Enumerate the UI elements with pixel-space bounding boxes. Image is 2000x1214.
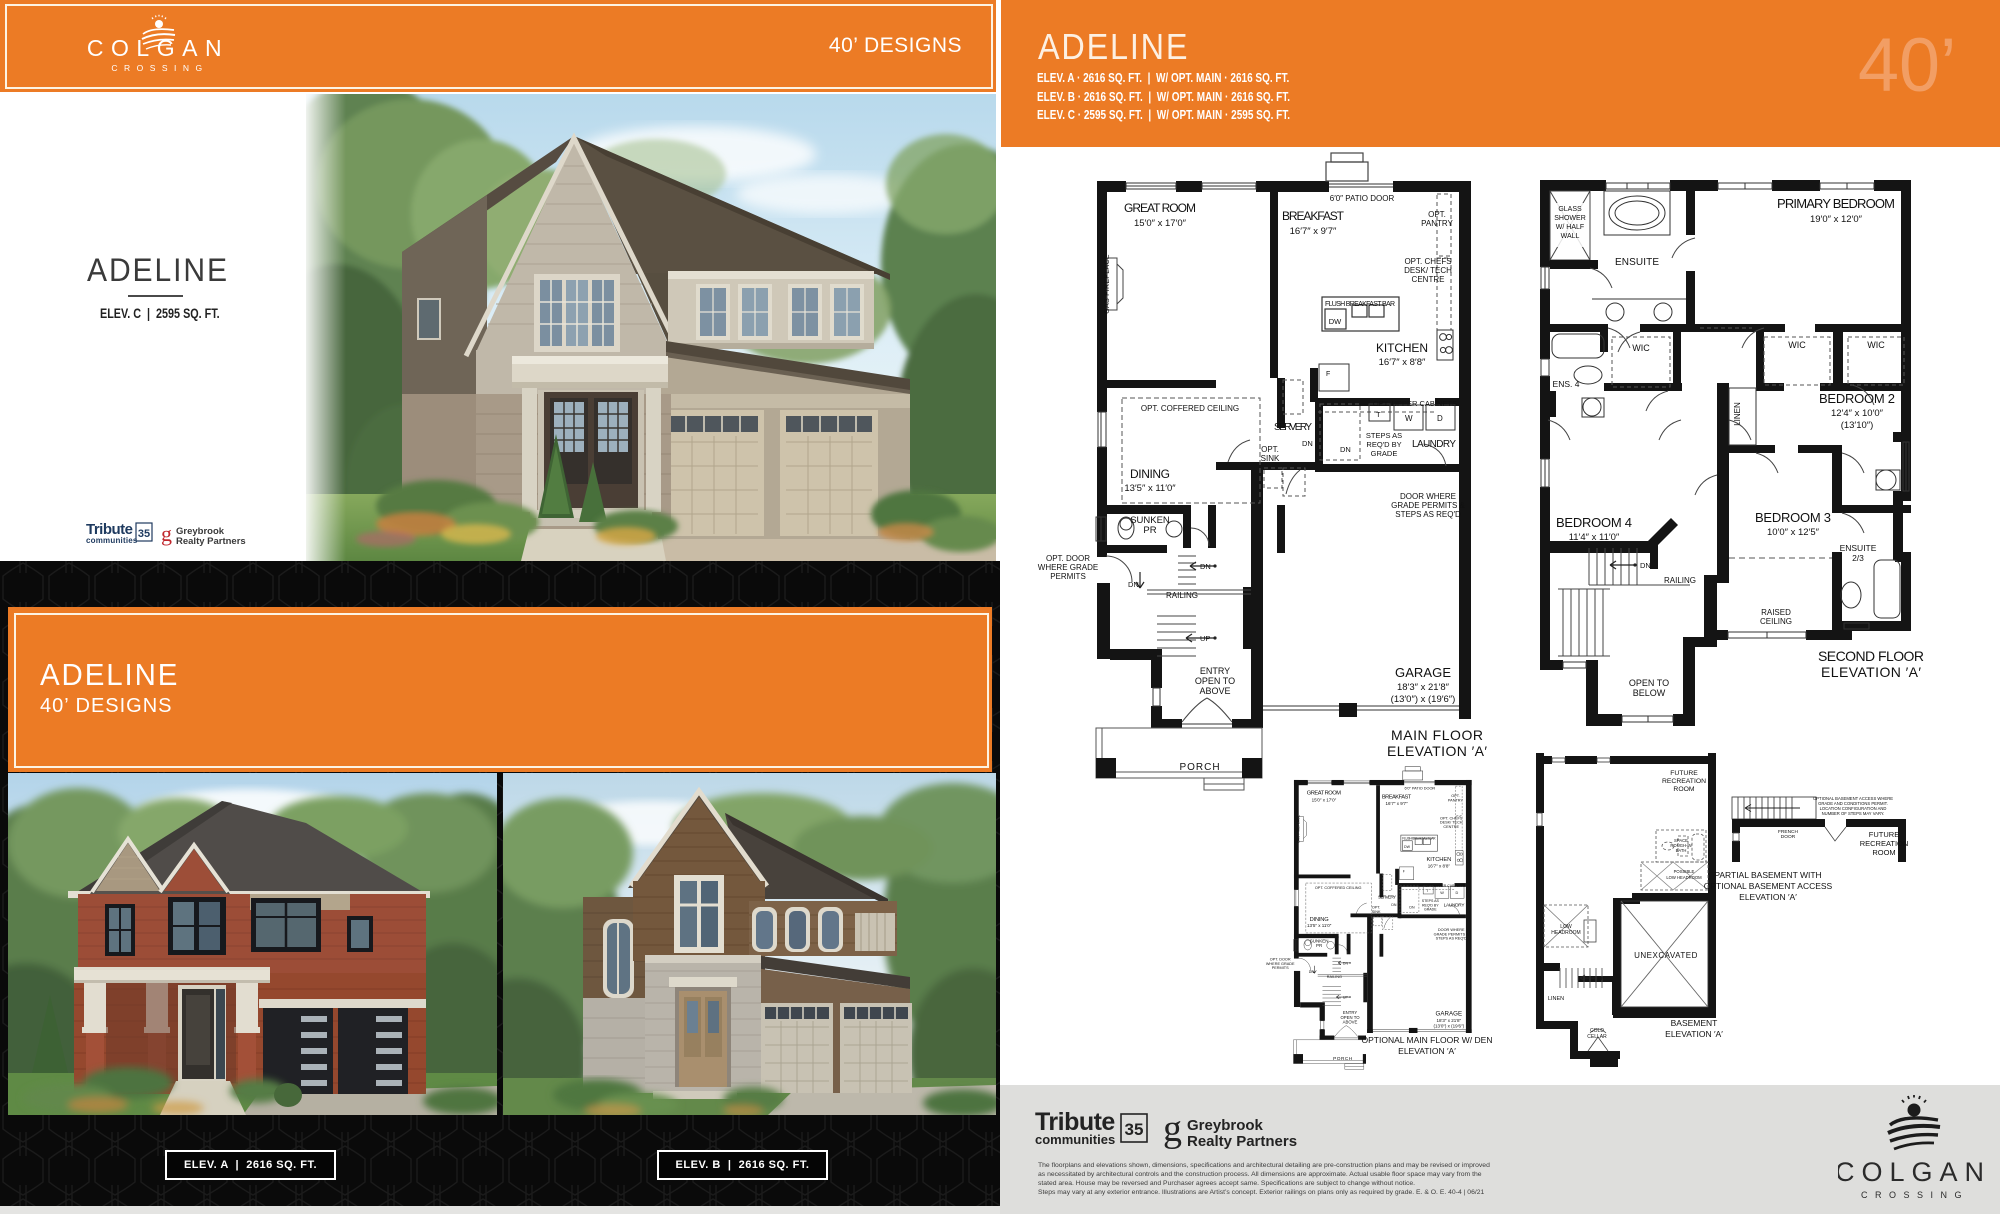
svg-text:SECOND FLOOR: SECOND FLOOR <box>1818 648 1924 664</box>
svg-text:W: W <box>1405 414 1413 423</box>
svg-text:ELEVATION ′A′: ELEVATION ′A′ <box>1739 892 1797 902</box>
svg-text:REQ′D BY: REQ′D BY <box>1366 440 1401 449</box>
svg-text:HEADROOM: HEADROOM <box>1551 930 1580 936</box>
svg-text:19′0″ x 12′0″: 19′0″ x 12′0″ <box>1810 214 1863 225</box>
svg-text:WIC: WIC <box>1867 340 1885 350</box>
svg-text:PARTIAL BASEMENT WITH: PARTIAL BASEMENT WITH <box>1714 870 1821 880</box>
svg-text:GAS FIREPLACE: GAS FIREPLACE <box>1104 254 1111 314</box>
svg-text:WHERE GRADE: WHERE GRADE <box>1038 563 1098 572</box>
svg-text:communities: communities <box>86 536 138 545</box>
svg-text:RECREATION: RECREATION <box>1662 778 1706 785</box>
svg-text:FUTURE: FUTURE <box>1869 830 1899 839</box>
svg-text:11′4″ x 11′0″: 11′4″ x 11′0″ <box>1569 532 1620 543</box>
svg-text:WALL: WALL <box>1561 233 1580 240</box>
svg-text:BATH: BATH <box>1676 848 1687 853</box>
svg-text:BEDROOM 3: BEDROOM 3 <box>1755 510 1831 525</box>
svg-text:ENSUITE: ENSUITE <box>1840 543 1877 553</box>
svg-text:18′3″ x 21′8″: 18′3″ x 21′8″ <box>1397 682 1450 693</box>
svg-text:PANTRY: PANTRY <box>1421 219 1453 228</box>
svg-text:communities: communities <box>1035 1132 1115 1147</box>
svg-text:RAILING: RAILING <box>1664 576 1696 585</box>
svg-text:KITCHEN: KITCHEN <box>1376 341 1428 355</box>
svg-text:OPTIONAL BASEMENT ACCESS: OPTIONAL BASEMENT ACCESS <box>1704 881 1833 891</box>
svg-text:PR: PR <box>1143 525 1156 536</box>
svg-text:OPT. UPPER CABINETS: OPT. UPPER CABINETS <box>1373 399 1457 408</box>
svg-text:OPTIONAL MAIN FLOOR W/ DEN: OPTIONAL MAIN FLOOR W/ DEN <box>1362 1035 1493 1045</box>
svg-text:Realty Partners: Realty Partners <box>1187 1133 1297 1150</box>
svg-text:F: F <box>1326 371 1330 378</box>
svg-text:STEPS AS REQ′D: STEPS AS REQ′D <box>1395 510 1461 519</box>
svg-text:UNEXCAVATED: UNEXCAVATED <box>1634 951 1698 960</box>
svg-text:OPEN TO: OPEN TO <box>1629 678 1669 688</box>
svg-text:LAUNDRY: LAUNDRY <box>1412 439 1456 450</box>
svg-text:DESK/ TECH: DESK/ TECH <box>1404 266 1452 275</box>
svg-text:BASEMENT: BASEMENT <box>1671 1018 1718 1028</box>
svg-text:STEPS AS: STEPS AS <box>1366 431 1402 440</box>
svg-text:MAIN FLOOR: MAIN FLOOR <box>1391 727 1483 743</box>
svg-text:BELOW: BELOW <box>1633 688 1666 698</box>
svg-text:CROSSING: CROSSING <box>1861 1190 1969 1200</box>
svg-text:DOOR: DOOR <box>1781 834 1796 840</box>
svg-text:2/3: 2/3 <box>1852 553 1864 563</box>
svg-text:OPT. CHEFS: OPT. CHEFS <box>1404 257 1451 266</box>
svg-text:ENS. 4: ENS. 4 <box>1553 379 1580 389</box>
svg-text:DW: DW <box>1329 317 1342 326</box>
svg-text:DN: DN <box>1302 439 1313 448</box>
svg-text:ELEVATION ′A′: ELEVATION ′A′ <box>1665 1029 1723 1039</box>
svg-text:FUTURE: FUTURE <box>1670 770 1698 777</box>
svg-text:DOOR WHERE: DOOR WHERE <box>1400 492 1456 501</box>
svg-text:D: D <box>1437 414 1443 423</box>
svg-text:SHOWER: SHOWER <box>1554 215 1586 222</box>
svg-text:CELLAR: CELLAR <box>1587 1034 1607 1040</box>
svg-text:BEDROOM 2: BEDROOM 2 <box>1819 391 1895 406</box>
svg-text:W/ HALF: W/ HALF <box>1556 224 1584 231</box>
svg-text:UP: UP <box>1200 634 1210 643</box>
svg-text:POSSIBLE: POSSIBLE <box>1674 869 1695 874</box>
svg-text:BREAKFAST: BREAKFAST <box>1282 209 1345 223</box>
svg-text:GRADE PERMITS &: GRADE PERMITS & <box>1391 501 1465 510</box>
svg-text:DN: DN <box>1200 562 1211 571</box>
svg-text:16′7″ x 8′8″: 16′7″ x 8′8″ <box>1379 357 1426 368</box>
svg-text:RAISED: RAISED <box>1761 608 1791 617</box>
svg-text:NUMBER OF STEPS MAY VARY.: NUMBER OF STEPS MAY VARY. <box>1822 811 1885 816</box>
svg-text:RECREATION: RECREATION <box>1860 839 1909 848</box>
svg-text:RAILING: RAILING <box>1166 591 1198 600</box>
svg-text:ABOVE: ABOVE <box>1199 686 1230 696</box>
svg-text:DN: DN <box>1340 445 1351 454</box>
svg-text:OPT.: OPT. <box>1428 210 1446 219</box>
svg-text:WIC: WIC <box>1788 340 1806 350</box>
svg-text:OPT. DOOR: OPT. DOOR <box>1046 554 1090 563</box>
svg-text:ROOM: ROOM <box>1872 848 1895 857</box>
svg-text:ENSUITE: ENSUITE <box>1615 257 1659 268</box>
svg-text:12′4″ x 10′0″: 12′4″ x 10′0″ <box>1831 408 1884 419</box>
svg-text:PORCH: PORCH <box>1179 762 1220 773</box>
svg-text:GRADE: GRADE <box>1371 449 1398 458</box>
svg-text:OPT. COFFERED CEILING: OPT. COFFERED CEILING <box>1141 404 1239 413</box>
svg-text:LOW HEADROOM: LOW HEADROOM <box>1666 875 1702 880</box>
svg-text:ROOM: ROOM <box>1673 786 1694 793</box>
svg-text:COLGAN: COLGAN <box>1838 1157 1988 1187</box>
svg-text:OPT.: OPT. <box>1261 445 1279 454</box>
svg-text:BEDROOM 4: BEDROOM 4 <box>1556 515 1632 530</box>
svg-text:g: g <box>161 521 172 546</box>
svg-text:CROSSING: CROSSING <box>111 63 208 73</box>
svg-text:16′7″ x 9′7″: 16′7″ x 9′7″ <box>1290 226 1337 237</box>
svg-text:PERMITS: PERMITS <box>1050 572 1086 581</box>
svg-text:ELEVATION ′A′: ELEVATION ′A′ <box>1398 1046 1456 1056</box>
svg-text:Realty Partners: Realty Partners <box>176 536 246 547</box>
svg-text:SINK: SINK <box>1261 454 1280 463</box>
svg-text:DN: DN <box>1640 561 1651 570</box>
svg-text:Greybrook: Greybrook <box>1187 1117 1264 1134</box>
svg-text:6′0″ PATIO DOOR: 6′0″ PATIO DOOR <box>1330 194 1395 203</box>
svg-text:LINEN: LINEN <box>1548 996 1564 1002</box>
svg-text:35: 35 <box>138 528 150 540</box>
svg-text:FLUSH BREAKFAST BAR: FLUSH BREAKFAST BAR <box>1325 301 1395 308</box>
svg-text:T: T <box>1376 410 1381 419</box>
svg-text:(13′0″) x (19′6″): (13′0″) x (19′6″) <box>1391 694 1456 705</box>
svg-text:CENTRE: CENTRE <box>1412 275 1445 284</box>
svg-text:ELEVATION ′A′: ELEVATION ′A′ <box>1387 743 1487 759</box>
svg-text:DINING: DINING <box>1130 467 1170 481</box>
svg-text:OPEN TO: OPEN TO <box>1195 676 1235 686</box>
svg-text:15′0″ x 17′0″: 15′0″ x 17′0″ <box>1134 218 1187 229</box>
svg-text:UP: UP <box>1598 976 1604 981</box>
svg-text:GLASS: GLASS <box>1558 206 1582 213</box>
svg-text:SERVERY: SERVERY <box>1274 422 1312 433</box>
svg-text:ENTRY: ENTRY <box>1200 666 1230 676</box>
svg-text:CEILING: CEILING <box>1760 617 1792 626</box>
svg-text:COLGAN: COLGAN <box>87 35 229 61</box>
svg-text:GARAGE: GARAGE <box>1395 665 1451 680</box>
svg-text:DN: DN <box>1128 580 1139 589</box>
svg-text:g: g <box>1163 1108 1182 1150</box>
svg-text:13′5″ x 11′0″: 13′5″ x 11′0″ <box>1124 483 1176 494</box>
svg-text:(13′10″): (13′10″) <box>1841 420 1874 431</box>
svg-text:GREAT ROOM: GREAT ROOM <box>1124 201 1196 215</box>
svg-text:ELEVATION ′A′: ELEVATION ′A′ <box>1821 664 1921 680</box>
svg-text:PRIMARY BEDROOM: PRIMARY BEDROOM <box>1777 196 1895 211</box>
svg-text:WIC: WIC <box>1632 343 1650 353</box>
svg-text:35: 35 <box>1125 1120 1144 1139</box>
svg-text:10′0″ x 12′5″: 10′0″ x 12′5″ <box>1767 527 1820 538</box>
